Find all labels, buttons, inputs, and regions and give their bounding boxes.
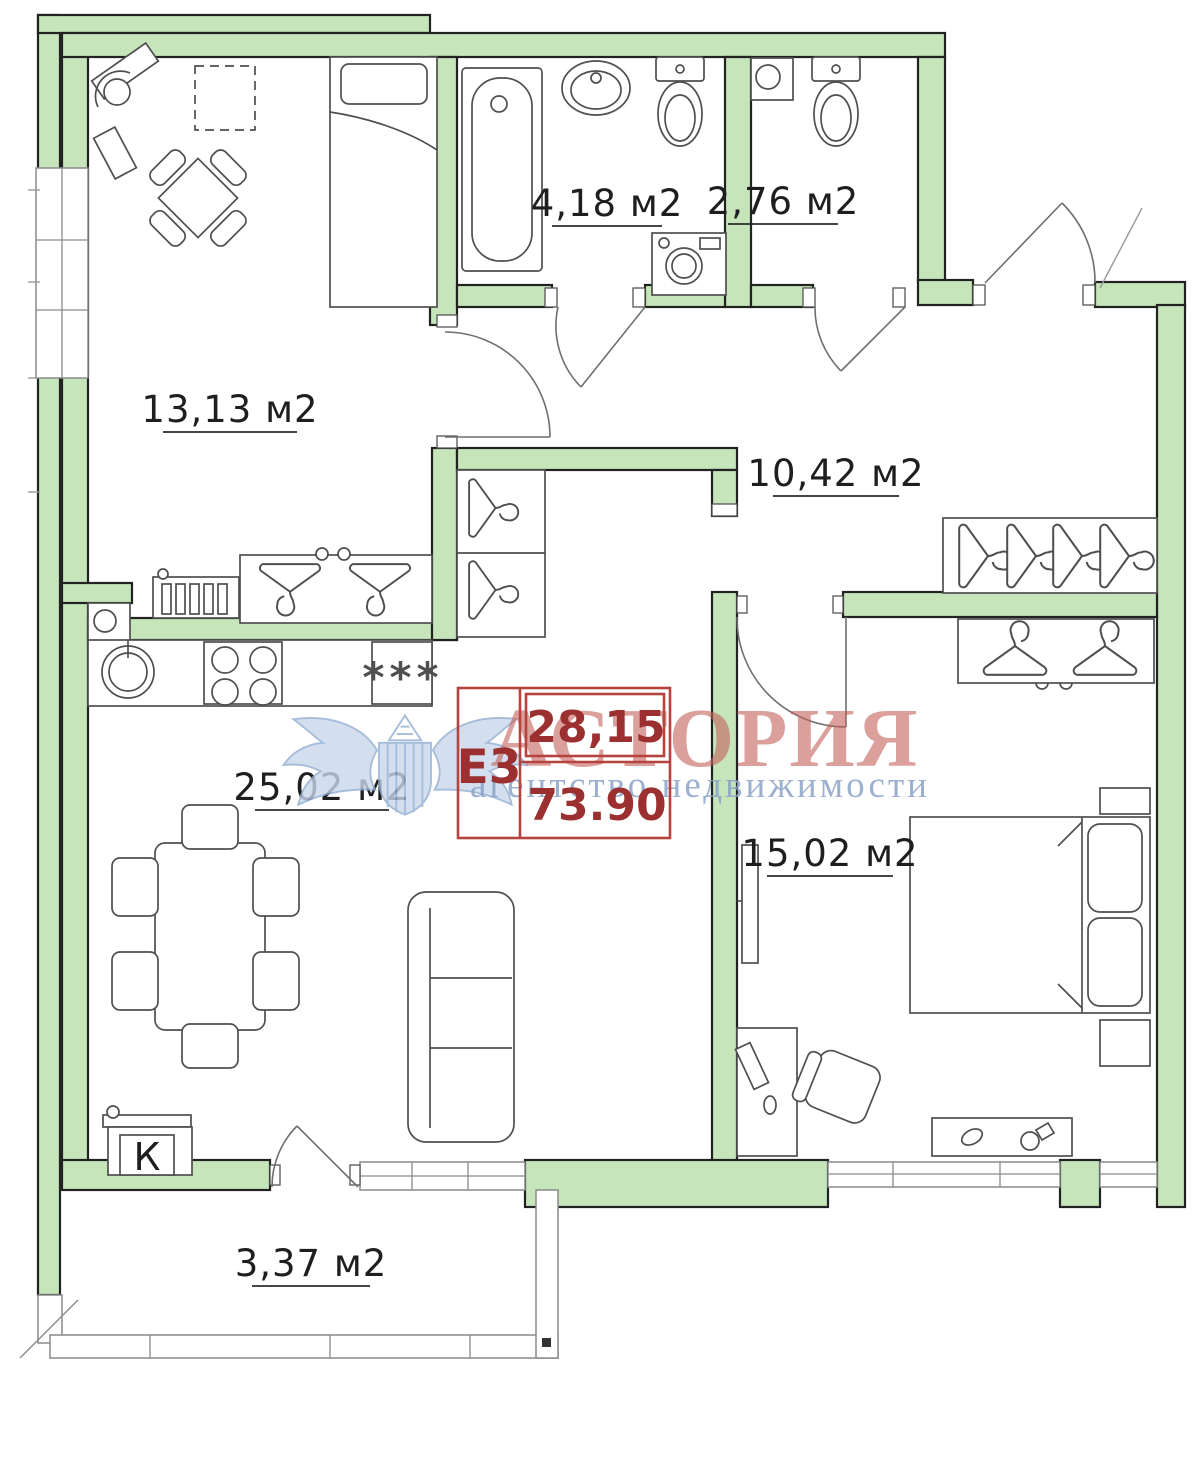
single-bed <box>330 57 437 307</box>
washing-machine <box>652 233 726 295</box>
sofa <box>408 892 514 1142</box>
toilet <box>656 57 704 146</box>
fridge: *** <box>363 642 444 704</box>
dining-set <box>112 805 299 1068</box>
bookshelf <box>153 569 239 618</box>
door-entrance <box>985 203 1142 288</box>
desk-chair <box>104 79 130 105</box>
bathroom-fixtures <box>462 57 726 295</box>
board <box>94 127 137 179</box>
bathroom-area-label: 4,18 м2 <box>531 182 684 225</box>
living-furniture: К <box>103 805 514 1179</box>
door-wc <box>815 307 905 371</box>
hall-closet <box>457 470 545 637</box>
wc-area-label: 2,76 м2 <box>707 180 860 223</box>
bedroom-desk <box>735 1028 797 1156</box>
floor-plan-page: *** К <box>0 0 1200 1460</box>
sink-bath <box>562 61 630 115</box>
bedroom-area-label: 15,02 м2 <box>741 832 918 875</box>
room13-furniture <box>92 43 437 623</box>
boiler-label: К <box>134 1135 161 1179</box>
hall-area-label: 10,42 м2 <box>747 452 924 495</box>
balcony-area-label: 3,37 м2 <box>235 1242 388 1285</box>
nightstand <box>1100 788 1150 814</box>
desk-chair <box>791 1042 884 1126</box>
armchair-set <box>124 124 271 271</box>
living-area-value: 28,15 <box>526 702 665 753</box>
nightstand <box>1100 1020 1150 1066</box>
door-room13 <box>445 332 550 437</box>
bathtub <box>462 68 542 271</box>
floor-plan-drawing: *** К <box>0 0 1200 1460</box>
unit-type-label: Е3 <box>457 740 522 795</box>
boiler-box: К <box>103 1106 192 1179</box>
door-bathroom <box>556 307 645 387</box>
door-balcony <box>272 1126 358 1187</box>
bedroom-wardrobe <box>958 619 1154 689</box>
wardrobe-room13 <box>240 548 432 623</box>
dashed-cabinet <box>195 66 255 130</box>
toilet <box>812 57 860 146</box>
wc-fixtures <box>751 57 860 146</box>
double-bed <box>910 817 1150 1013</box>
hall-wardrobe <box>943 518 1157 593</box>
unit-type-box: Е3 28,15 73.90 <box>457 688 670 838</box>
room13-area-label: 13,13 м2 <box>141 388 318 431</box>
fridge-symbol: *** <box>363 653 444 702</box>
bench <box>932 1118 1072 1156</box>
total-area-value: 73.90 <box>527 780 666 831</box>
